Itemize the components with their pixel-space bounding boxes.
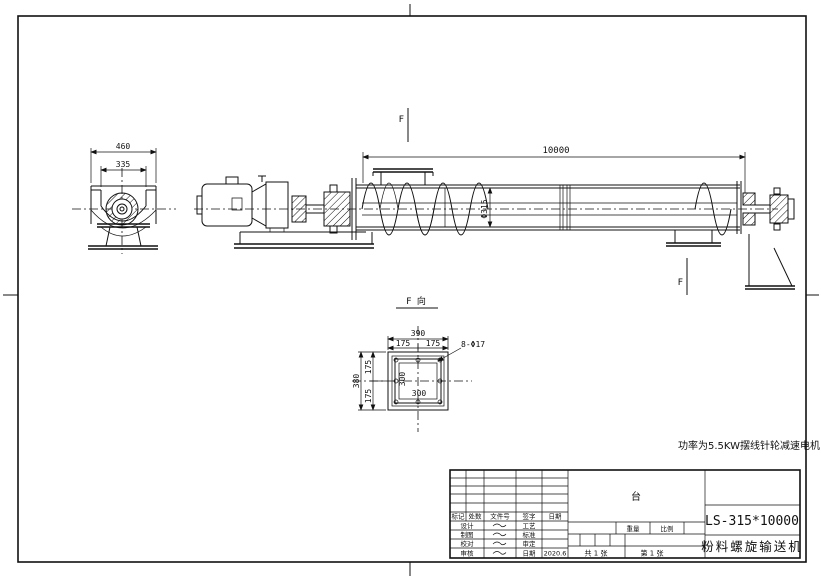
title-block: 标记 处数 文件号 签字 日期 设计 工艺 制图 标准 校对 审定 审核 日期 … xyxy=(450,470,803,558)
th-sign: 签字 xyxy=(523,512,537,521)
dim-175-right: 175 xyxy=(426,339,441,348)
tube-bottom xyxy=(356,227,740,230)
dim-300-v: 300 xyxy=(398,372,407,387)
revision-table: 标记 处数 文件号 签字 日期 设计 工艺 制图 标准 校对 审定 审核 日期 … xyxy=(450,470,568,558)
sheet-info: 台 重量 比例 共 1 张 第 1 张 xyxy=(568,470,705,558)
main-view: 10000 Φ315 F F xyxy=(194,108,795,295)
date-value: 2020.6 xyxy=(544,550,567,558)
th-date: 日期 xyxy=(549,513,563,521)
drawing-frame xyxy=(3,4,819,576)
tube-top xyxy=(356,185,740,188)
section-view-f: F 向 390 175 175 8-Φ17 380 175 175 xyxy=(352,295,485,432)
th-mark: 标记 xyxy=(452,512,466,521)
unit-label: 台 xyxy=(631,490,641,503)
drawing-sheet: 460 335 xyxy=(0,0,821,579)
view-arrow-bottom-label: F xyxy=(678,278,683,288)
row-draw-label: 制图 xyxy=(461,530,474,539)
dim-380: 380 xyxy=(352,374,361,389)
end-view: 460 335 xyxy=(72,142,176,254)
end-support-bracket xyxy=(745,234,795,289)
dim-175-top: 175 xyxy=(364,360,373,375)
scale-label: 比例 xyxy=(661,524,674,533)
th-count: 处数 xyxy=(469,512,483,521)
row-check-label: 校对 xyxy=(461,539,475,548)
sheet-no: 第 1 张 xyxy=(641,549,664,558)
row-design-label: 设计 xyxy=(461,521,475,530)
motor-junction-box xyxy=(226,177,238,184)
drawing-id: LS-315*10000 粉料螺旋输送机 xyxy=(701,505,803,554)
base-plate xyxy=(234,232,374,248)
dim-175-bottom: 175 xyxy=(364,389,373,404)
gear-reducer xyxy=(252,176,288,232)
sheet-total: 共 1 张 xyxy=(585,549,608,558)
dim-phi315: Φ315 xyxy=(480,199,489,218)
dim-300-h: 300 xyxy=(412,389,427,398)
th-docno: 文件号 xyxy=(490,512,510,521)
stuffing-box xyxy=(324,192,350,226)
dim-335: 335 xyxy=(116,160,131,169)
holes-leader xyxy=(438,348,461,361)
feed-inlet xyxy=(373,169,433,185)
tube-right-endplate xyxy=(737,181,741,234)
dim-460: 460 xyxy=(116,142,131,151)
legs xyxy=(106,227,141,246)
row-standard-label: 标准 xyxy=(523,530,537,539)
weight-label: 重量 xyxy=(627,525,641,533)
row-process-label: 工艺 xyxy=(523,522,537,530)
cad-drawing: 460 335 xyxy=(0,0,821,579)
tube-break-lines xyxy=(560,185,570,230)
power-note: 功率为5.5KW摆线针轮减速电机 xyxy=(678,439,820,452)
reducer-stud xyxy=(258,176,266,182)
row-date-label: 日期 xyxy=(523,550,537,558)
holes-label: 8-Φ17 xyxy=(461,340,485,349)
row-approve-label: 审定 xyxy=(523,539,537,548)
view-arrow-top-label: F xyxy=(399,115,404,125)
discharge-outlet xyxy=(666,230,721,246)
dim-390: 390 xyxy=(411,329,426,338)
product-name: 粉料螺旋输送机 xyxy=(701,539,803,554)
row-audit-label: 审核 xyxy=(461,549,475,558)
motor xyxy=(197,177,252,226)
dim-175-left: 175 xyxy=(396,339,411,348)
model-number: LS-315*10000 xyxy=(705,514,799,529)
section-title: F 向 xyxy=(406,295,426,307)
shaft-circle xyxy=(112,199,132,219)
dim-10000: 10000 xyxy=(542,146,569,156)
base-line xyxy=(88,246,158,249)
